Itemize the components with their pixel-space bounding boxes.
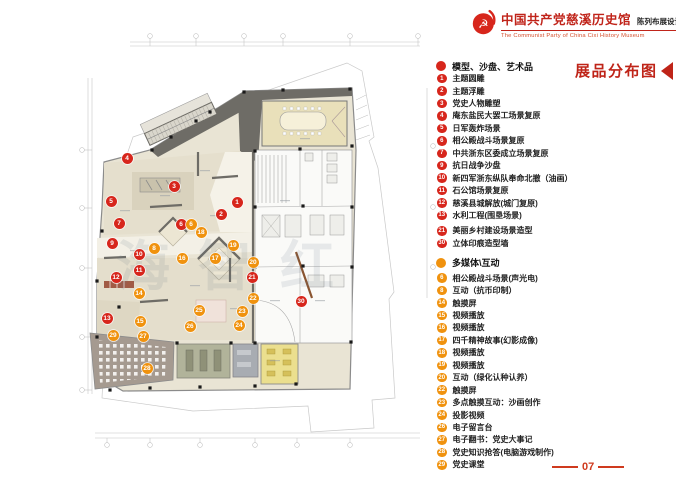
legend-item: 8互动（抗币印制） (436, 284, 674, 296)
item-number-badge: 13 (437, 211, 447, 221)
item-label: 互动（绿化认种认养） (453, 372, 533, 383)
museum-title: 中国共产党慈溪历史馆 (501, 9, 631, 28)
item-number-badge: 26 (437, 423, 447, 433)
item-number-badge: 29 (437, 460, 447, 470)
item-label: 日军轰炸场景 (453, 123, 501, 134)
legend-item: 14触摸屏 (436, 297, 674, 309)
legend-item: 23多点触摸互动：沙画创作 (436, 396, 674, 408)
exhibit-zones (97, 151, 255, 340)
legend-item: 18视频播放 (436, 347, 674, 359)
item-label: 视频播放 (453, 310, 485, 321)
item-label: 主题浮雕 (453, 86, 485, 97)
plan-subtitle: 陈列布展设计施工方案 (637, 16, 676, 27)
item-label: 抗日战争沙盘 (453, 160, 501, 171)
item-label: 党史知识抢答(电脑游戏制作) (453, 447, 554, 458)
item-number-badge: 14 (437, 298, 447, 308)
item-label: 中共浙东区委成立场景复原 (453, 148, 549, 159)
legend-item: 27电子翻书：党史大事记 (436, 434, 674, 446)
item-label: 视频播放 (453, 322, 485, 333)
legend-item: 21美丽乡村建设场景造型 (436, 225, 674, 237)
legend-item: 1主题圆雕 (436, 72, 674, 84)
item-number-badge: 27 (437, 435, 447, 445)
legend-item: 30立体印痕造型墙 (436, 237, 674, 249)
page: 海智红 123456791011121321306814151617181920… (0, 0, 676, 477)
item-number-badge: 5 (437, 124, 447, 134)
item-number-badge: 30 (437, 239, 447, 249)
item-label: 水利工程(围垦场景) (453, 210, 522, 221)
document-header: ☭ 中国共产党慈溪历史馆 陈列布展设计施工方案 The Communist Pa… (470, 9, 676, 39)
item-number-badge: 21 (437, 226, 447, 236)
legend-item: 4庵东盐民大罢工场景复原 (436, 110, 674, 122)
legend-section: 模型、沙盘、艺术品1主题圆雕2主题浮雕3党史人物雕塑4庵东盐民大罢工场景复原5日… (436, 60, 674, 250)
item-label: 四千精神故事(幻影成像) (453, 335, 538, 346)
item-number-badge: 23 (437, 398, 447, 408)
item-label: 多点触摸互动：沙画创作 (453, 397, 541, 408)
party-emblem-icon: ☭ (470, 9, 498, 37)
legend-item: 3党史人物雕塑 (436, 97, 674, 109)
item-label: 庵东盐民大罢工场景复原 (453, 110, 541, 121)
legend-item: 13水利工程(围垦场景) (436, 209, 674, 221)
legend-item: 5日军轰炸场景 (436, 122, 674, 134)
item-number-badge: 12 (437, 198, 447, 208)
legend-item: 16视频播放 (436, 322, 674, 334)
item-label: 视频播放 (453, 360, 485, 371)
item-number-badge: 10 (437, 173, 447, 183)
legend-list: 模型、沙盘、艺术品1主题圆雕2主题浮雕3党史人物雕塑4庵东盐民大罢工场景复原5日… (436, 60, 674, 471)
service-block (255, 150, 352, 343)
legend-section-header: 模型、沙盘、艺术品 (436, 60, 674, 72)
svg-text:☭: ☭ (478, 17, 489, 31)
item-number-badge: 19 (437, 361, 447, 371)
item-number-badge: 28 (437, 448, 447, 458)
item-label: 新四军浙东纵队奉命北撤（油画） (453, 173, 573, 184)
legend-item: 19视频播放 (436, 359, 674, 371)
item-number-badge: 1 (437, 74, 447, 84)
legend-item: 2主题浮雕 (436, 85, 674, 97)
item-label: 投影视频 (453, 410, 485, 421)
item-label: 慈溪县城解放(城门复原) (453, 198, 538, 209)
page-number-dash (552, 466, 578, 468)
page-number: 07 (552, 461, 624, 473)
item-number-badge: 9 (437, 161, 447, 171)
item-number-badge: 3 (437, 99, 447, 109)
item-label: 石公馆场景复原 (453, 185, 509, 196)
item-label: 触摸屏 (453, 385, 477, 396)
item-number-badge: 18 (437, 348, 447, 358)
legend-item: 28党史知识抢答(电脑游戏制作) (436, 446, 674, 458)
item-label: 触摸屏 (453, 298, 477, 309)
legend-item: 6相公殿战斗场景复原 (436, 135, 674, 147)
item-number-badge: 15 (437, 311, 447, 321)
item-label: 相公殿战斗场景复原 (453, 135, 525, 146)
section-dot-icon (436, 61, 446, 71)
item-label: 电子留言台 (453, 422, 493, 433)
item-label: 主题圆雕 (453, 73, 485, 84)
item-label: 党史人物雕塑 (453, 98, 501, 109)
page-number-value: 07 (582, 461, 594, 473)
legend-item: 15视频播放 (436, 309, 674, 321)
item-label: 电子翻书：党史大事记 (453, 434, 533, 445)
item-number-badge: 6 (437, 273, 447, 283)
legend-item: 20互动（绿化认种认养） (436, 372, 674, 384)
item-number-badge: 11 (437, 186, 447, 196)
item-number-badge: 4 (437, 111, 447, 121)
item-label: 美丽乡村建设场景造型 (453, 225, 533, 236)
item-number-badge: 6 (437, 136, 447, 146)
conference-room (262, 101, 347, 146)
item-number-badge: 24 (437, 410, 447, 420)
header-rule (501, 30, 676, 31)
item-label: 党史课堂 (453, 459, 485, 470)
legend-item: 9抗日战争沙盘 (436, 160, 674, 172)
legend-item: 11石公馆场景复原 (436, 184, 674, 196)
item-number-badge: 20 (437, 373, 447, 383)
legend-item: 17四千精神故事(幻影成像) (436, 334, 674, 346)
legend-item: 12慈溪县城解放(城门复原) (436, 197, 674, 209)
legend-item: 10新四军浙东纵队奉命北撤（油画） (436, 172, 674, 184)
item-label: 视频播放 (453, 347, 485, 358)
legend-item: 26电子留言台 (436, 421, 674, 433)
legend-item: 24投影视频 (436, 409, 674, 421)
item-number-badge: 22 (437, 385, 447, 395)
item-number-badge: 17 (437, 336, 447, 346)
legend-section: 多媒体\互动6相公殿战斗场景(声光电)8互动（抗币印制）14触摸屏15视频播放1… (436, 257, 674, 471)
item-label: 相公殿战斗场景(声光电) (453, 273, 538, 284)
page-number-dash (598, 466, 624, 468)
item-number-badge: 7 (437, 149, 447, 159)
museum-title-english: The Communist Party of China Cixi Histor… (501, 33, 676, 39)
item-label: 互动（抗币印制） (453, 285, 517, 296)
section-header-text: 多媒体\互动 (452, 256, 500, 269)
section-header-text: 模型、沙盘、艺术品 (452, 60, 533, 73)
legend-item: 22触摸屏 (436, 384, 674, 396)
item-number-badge: 2 (437, 86, 447, 96)
section-dot-icon (436, 258, 446, 268)
item-label: 立体印痕造型墙 (453, 238, 509, 249)
legend-item: 7中共浙东区委成立场景复原 (436, 147, 674, 159)
legend-section-header: 多媒体\互动 (436, 257, 674, 269)
item-number-badge: 8 (437, 286, 447, 296)
legend-item: 6相公殿战斗场景(声光电) (436, 272, 674, 284)
item-number-badge: 16 (437, 323, 447, 333)
